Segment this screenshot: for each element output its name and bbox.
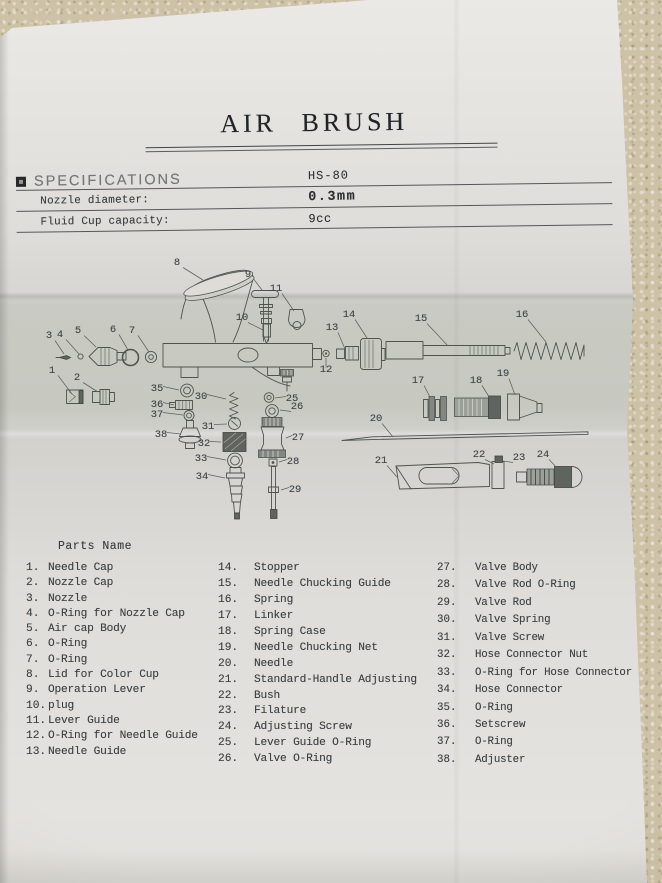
- callout-leader-line: [387, 466, 397, 478]
- callout-leader-line: [509, 379, 515, 396]
- callout-leader-line: [275, 397, 286, 399]
- part-callout-17: 17: [412, 375, 425, 387]
- part-callout-4: 4: [57, 329, 63, 341]
- callout-leader-line: [138, 336, 149, 353]
- photo-of-instruction-sheet: { "document": { "title": "AIR BRUSH", "m…: [0, 0, 662, 883]
- part-callout-5: 5: [75, 325, 81, 337]
- part-callout-2: 2: [74, 372, 80, 384]
- part-callout-15: 15: [415, 313, 428, 325]
- callout-leader-line: [282, 294, 294, 312]
- part-callout-3: 3: [46, 330, 52, 342]
- parts-21-24-handle-group: [396, 456, 582, 489]
- callout-leader-line: [248, 323, 263, 331]
- callout-leader-line: [84, 336, 96, 348]
- part-callout-9: 9: [245, 269, 251, 281]
- callout-leader-line: [58, 376, 72, 395]
- callout-leader-line: [254, 280, 262, 291]
- callout-leader-line: [424, 386, 430, 398]
- part-callout-1: 1: [49, 365, 55, 377]
- sheet-content: AIR BRUSH SPECIFICATIONS HS-80 Nozzle di…: [0, 0, 662, 883]
- part-callout-19: 19: [497, 368, 510, 380]
- callout-leader-line: [355, 320, 367, 339]
- part-callout-24: 24: [537, 449, 550, 461]
- parts-12-16-needle-train: [323, 339, 584, 370]
- part-callout-29: 29: [289, 484, 302, 496]
- part-11-lever-guide: [289, 310, 306, 330]
- part-callout-14: 14: [343, 309, 356, 321]
- part-number-callouts: 1234567891011121314151617181920212223242…: [46, 257, 562, 496]
- callout-leader-line: [66, 340, 79, 355]
- callout-leader-line: [83, 383, 98, 393]
- exploded-parts-diagram: 1234567891011121314151617181920212223242…: [0, 0, 662, 883]
- callout-leader-line: [382, 424, 393, 438]
- callout-leader-line: [208, 475, 225, 479]
- parts-17-19-spring-case-group: [424, 394, 543, 421]
- callout-leader-line: [214, 424, 227, 425]
- part-callout-20: 20: [370, 413, 383, 425]
- callout-leader-line: [528, 320, 546, 343]
- part-callout-7: 7: [129, 325, 135, 337]
- callout-leader-line: [163, 387, 179, 391]
- part-callout-34: 34: [196, 471, 209, 483]
- part-callout-8: 8: [174, 257, 180, 269]
- callout-leader-line: [183, 268, 203, 281]
- callout-leader-line: [163, 413, 183, 416]
- part-callout-6: 6: [110, 324, 116, 336]
- callout-leader-line: [210, 442, 221, 443]
- callout-leader-line: [55, 341, 64, 355]
- part-callout-30: 30: [195, 391, 208, 403]
- callout-leader-line: [280, 410, 291, 412]
- part-callout-13: 13: [326, 322, 339, 334]
- part-callout-35: 35: [151, 383, 164, 395]
- part-callout-10: 10: [236, 312, 249, 324]
- callout-leader-line: [503, 461, 513, 463]
- parts-30-34-hose-connector-group: [223, 393, 246, 520]
- part-callout-33: 33: [195, 453, 208, 465]
- callout-leader-line: [207, 395, 226, 400]
- part-callout-27: 27: [292, 432, 305, 444]
- callout-leader-line: [338, 333, 345, 350]
- part-callout-26: 26: [291, 401, 304, 413]
- part-9-10-lever-plug: [252, 291, 279, 344]
- part-callout-38: 38: [155, 429, 168, 441]
- part-callout-21: 21: [375, 455, 388, 467]
- callout-leader-line: [427, 324, 448, 347]
- part-callout-32: 32: [198, 438, 211, 450]
- part-callout-31: 31: [202, 421, 215, 433]
- part-callout-23: 23: [513, 452, 526, 464]
- part-callout-11: 11: [270, 283, 283, 295]
- part-callout-28: 28: [287, 456, 300, 468]
- part-callout-16: 16: [516, 309, 529, 321]
- parts-25-29-valve-group: [259, 393, 286, 519]
- callout-leader-line: [167, 433, 181, 435]
- part-callout-12: 12: [320, 364, 333, 376]
- callout-leader-line: [207, 457, 226, 461]
- part-callout-37: 37: [151, 409, 164, 421]
- parts-1-7-nozzle-group: [56, 348, 157, 405]
- part-20-needle: [342, 432, 588, 441]
- part-callout-22: 22: [473, 449, 486, 461]
- part-callout-18: 18: [470, 375, 483, 387]
- callout-leader-line: [119, 335, 128, 351]
